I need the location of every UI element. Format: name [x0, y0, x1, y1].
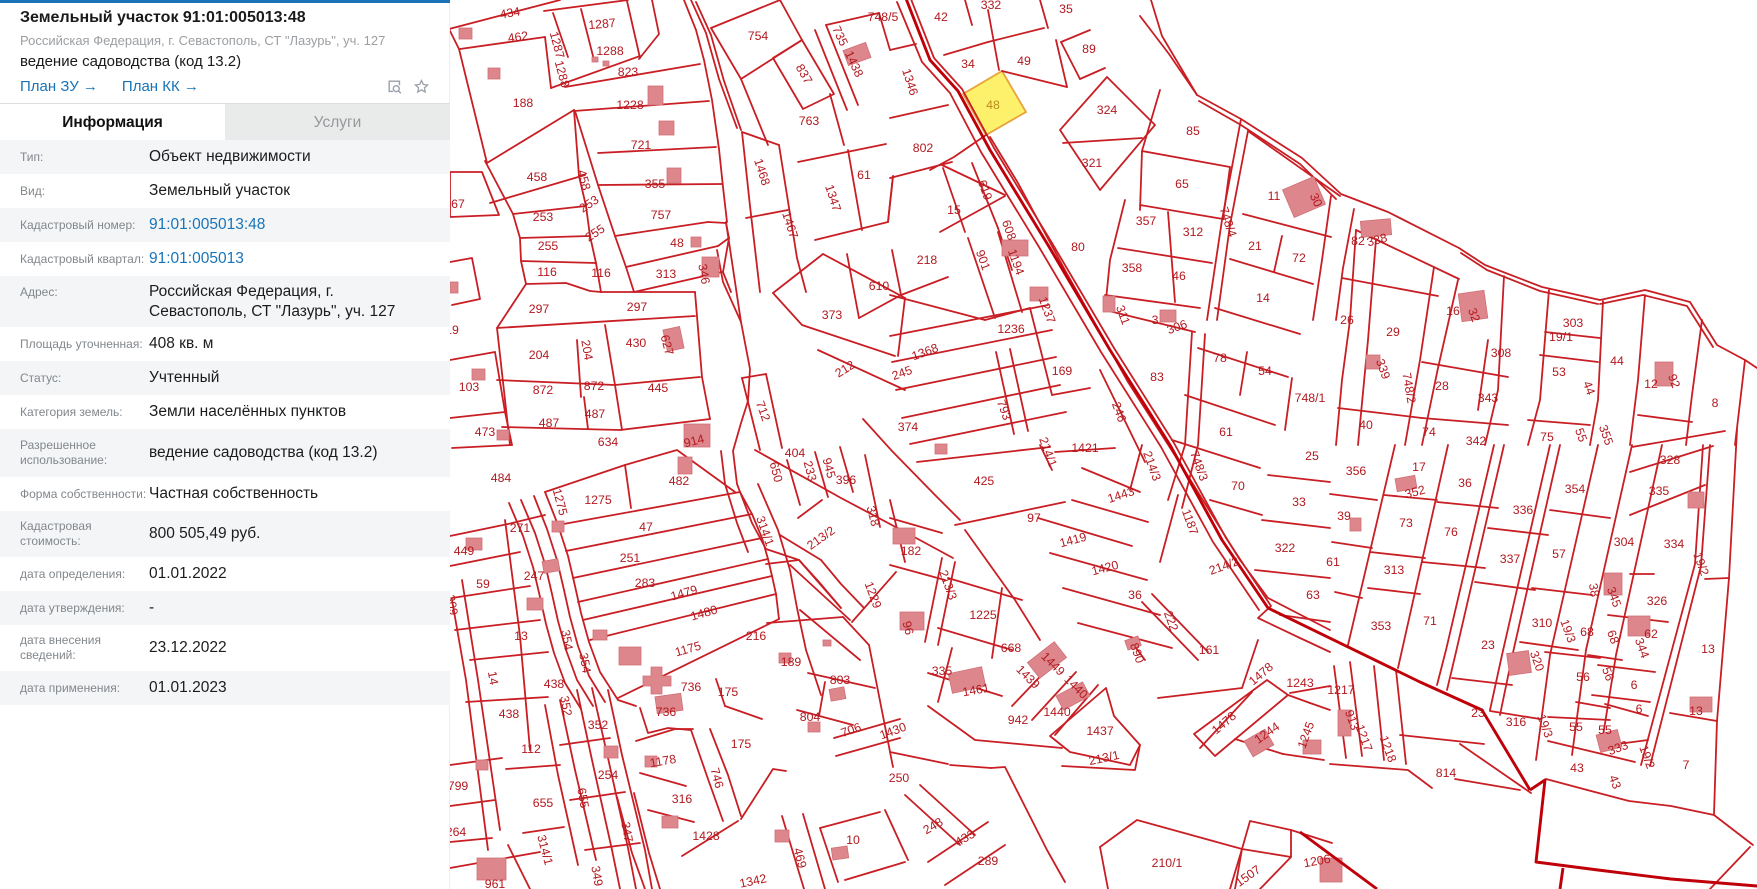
svg-text:103: 103: [459, 380, 480, 394]
svg-text:54: 54: [1258, 364, 1272, 378]
svg-text:358: 358: [1122, 261, 1143, 275]
svg-text:82: 82: [1351, 234, 1365, 248]
svg-text:61: 61: [857, 168, 871, 182]
svg-text:26: 26: [1340, 313, 1354, 327]
svg-text:343: 343: [1478, 391, 1499, 405]
svg-text:823: 823: [618, 65, 639, 79]
svg-text:57: 57: [1552, 547, 1566, 561]
svg-text:1287: 1287: [588, 16, 617, 32]
svg-text:1225: 1225: [969, 608, 997, 622]
svg-text:254: 254: [598, 768, 619, 782]
svg-text:80: 80: [1071, 240, 1085, 254]
svg-text:34: 34: [961, 57, 975, 71]
svg-text:322: 322: [1275, 541, 1296, 555]
svg-text:316: 316: [1506, 715, 1527, 729]
svg-text:218: 218: [917, 253, 938, 267]
svg-text:297: 297: [529, 302, 550, 316]
svg-text:13: 13: [514, 629, 528, 643]
svg-text:373: 373: [822, 308, 843, 322]
svg-text:7: 7: [1683, 758, 1690, 772]
svg-text:74: 74: [1422, 425, 1436, 439]
svg-text:1421: 1421: [1071, 441, 1099, 455]
svg-text:48: 48: [670, 236, 684, 250]
svg-text:116: 116: [537, 265, 557, 279]
svg-text:1228: 1228: [616, 98, 644, 112]
svg-text:754: 754: [748, 29, 769, 43]
svg-text:25: 25: [1305, 449, 1319, 463]
svg-text:335: 335: [1649, 484, 1670, 498]
svg-text:342: 342: [1466, 434, 1487, 448]
svg-text:438: 438: [499, 707, 520, 721]
svg-text:12: 12: [1644, 377, 1658, 391]
svg-text:332: 332: [981, 0, 1002, 12]
svg-text:39: 39: [1337, 509, 1351, 523]
svg-text:337: 337: [1500, 552, 1521, 566]
svg-text:1428: 1428: [692, 829, 720, 843]
svg-text:872: 872: [584, 379, 605, 393]
svg-text:47: 47: [639, 520, 653, 534]
svg-text:63: 63: [1306, 588, 1320, 602]
svg-text:216: 216: [746, 629, 767, 643]
svg-text:112: 112: [521, 742, 541, 756]
svg-text:85: 85: [1186, 124, 1200, 138]
svg-text:76: 76: [1444, 525, 1458, 539]
svg-text:204: 204: [529, 348, 550, 362]
svg-text:70: 70: [1231, 479, 1245, 493]
svg-text:942: 942: [1008, 713, 1029, 727]
svg-text:487: 487: [585, 407, 606, 421]
svg-text:251: 251: [620, 551, 641, 565]
svg-text:59: 59: [476, 577, 490, 591]
svg-text:73: 73: [1399, 516, 1413, 530]
svg-text:68: 68: [1580, 625, 1594, 639]
svg-text:253: 253: [533, 210, 554, 224]
svg-text:78: 78: [1213, 351, 1227, 365]
svg-text:44: 44: [1610, 354, 1624, 368]
svg-text:19/1: 19/1: [1549, 330, 1573, 344]
svg-text:354: 354: [1565, 482, 1586, 496]
svg-text:655: 655: [533, 796, 554, 810]
svg-text:303: 303: [1563, 316, 1584, 330]
svg-text:188: 188: [513, 96, 534, 110]
svg-text:55: 55: [1569, 720, 1583, 734]
svg-text:304: 304: [1614, 535, 1635, 549]
svg-text:36: 36: [1128, 588, 1142, 602]
svg-text:289: 289: [978, 854, 999, 868]
svg-text:161: 161: [1199, 643, 1220, 657]
svg-text:182: 182: [901, 544, 922, 558]
svg-text:55: 55: [1598, 723, 1612, 737]
svg-text:40: 40: [1359, 418, 1373, 432]
svg-text:48: 48: [986, 98, 1000, 112]
svg-text:1437: 1437: [1086, 724, 1114, 738]
svg-text:721: 721: [631, 138, 652, 152]
svg-text:23: 23: [1471, 706, 1485, 720]
svg-text:748/1: 748/1: [1295, 391, 1326, 405]
svg-text:748/5: 748/5: [868, 10, 899, 24]
svg-text:15: 15: [947, 203, 961, 217]
svg-text:445: 445: [648, 381, 669, 395]
svg-text:668: 668: [1001, 641, 1022, 655]
svg-text:757: 757: [651, 208, 672, 222]
svg-text:374: 374: [898, 420, 919, 434]
svg-text:610: 610: [869, 279, 890, 293]
svg-text:29: 29: [1386, 325, 1400, 339]
svg-text:283: 283: [635, 576, 656, 590]
svg-text:352: 352: [588, 718, 609, 732]
svg-text:353: 353: [1371, 619, 1392, 633]
svg-text:326: 326: [1647, 594, 1668, 608]
svg-text:28: 28: [1435, 379, 1449, 393]
svg-text:396: 396: [836, 473, 857, 487]
svg-text:65: 65: [1175, 177, 1189, 191]
svg-text:6: 6: [1636, 702, 1643, 716]
svg-text:43: 43: [1570, 761, 1584, 775]
svg-text:255: 255: [538, 239, 559, 253]
svg-text:324: 324: [1097, 103, 1118, 117]
svg-text:49: 49: [1017, 54, 1031, 68]
svg-text:75: 75: [1540, 430, 1554, 444]
svg-text:1440: 1440: [1043, 705, 1071, 719]
svg-text:97: 97: [1027, 511, 1041, 525]
svg-text:271: 271: [510, 521, 531, 535]
svg-text:297: 297: [627, 300, 648, 314]
svg-text:961: 961: [485, 877, 506, 889]
svg-text:36: 36: [1458, 476, 1472, 490]
svg-text:61: 61: [1326, 555, 1340, 569]
svg-text:116: 116: [591, 266, 611, 280]
svg-text:33: 33: [1292, 495, 1306, 509]
svg-text:175: 175: [718, 685, 739, 699]
svg-text:736: 736: [656, 705, 677, 719]
svg-text:42: 42: [934, 10, 948, 24]
svg-text:763: 763: [799, 114, 820, 128]
svg-text:799: 799: [448, 779, 469, 793]
svg-text:250: 250: [889, 771, 910, 785]
svg-text:804: 804: [800, 710, 821, 724]
svg-text:13: 13: [1701, 642, 1715, 656]
svg-text:1243: 1243: [1286, 676, 1314, 690]
svg-text:17: 17: [1412, 460, 1426, 474]
svg-text:335: 335: [932, 664, 953, 678]
svg-text:1236: 1236: [997, 322, 1025, 336]
svg-text:814: 814: [1436, 766, 1457, 780]
svg-text:247: 247: [524, 569, 545, 583]
svg-text:8: 8: [1712, 396, 1719, 410]
svg-text:310: 310: [1532, 616, 1553, 630]
svg-text:313: 313: [1384, 563, 1405, 577]
svg-text:3: 3: [1152, 313, 1159, 327]
svg-text:23: 23: [1481, 638, 1495, 652]
svg-text:56: 56: [1576, 670, 1590, 684]
svg-text:308: 308: [1491, 346, 1512, 360]
svg-text:357: 357: [1136, 214, 1157, 228]
svg-text:462: 462: [507, 29, 529, 46]
svg-text:312: 312: [1183, 225, 1204, 239]
svg-text:449: 449: [454, 544, 475, 558]
svg-text:14: 14: [1256, 291, 1270, 305]
svg-text:484: 484: [491, 471, 512, 485]
svg-text:736: 736: [681, 680, 702, 694]
svg-text:634: 634: [598, 435, 619, 449]
svg-text:14: 14: [485, 670, 501, 686]
svg-text:13: 13: [1689, 704, 1703, 718]
svg-text:46: 46: [1172, 269, 1186, 283]
svg-text:1275: 1275: [584, 493, 612, 507]
svg-text:6: 6: [1631, 678, 1638, 692]
svg-text:38: 38: [1586, 582, 1602, 598]
svg-text:83: 83: [1150, 370, 1164, 384]
svg-text:1217: 1217: [1327, 683, 1355, 697]
svg-text:67: 67: [451, 197, 465, 211]
svg-text:53: 53: [1552, 365, 1566, 379]
svg-text:210/1: 210/1: [1152, 856, 1183, 870]
svg-text:175: 175: [731, 737, 752, 751]
svg-text:458: 458: [527, 170, 548, 184]
svg-text:89: 89: [1082, 42, 1096, 56]
svg-text:71: 71: [1423, 614, 1437, 628]
svg-text:313: 313: [656, 267, 677, 281]
svg-text:11: 11: [1268, 189, 1281, 203]
svg-text:189: 189: [781, 655, 802, 669]
svg-text:1288: 1288: [596, 44, 624, 58]
svg-text:355: 355: [645, 177, 666, 191]
svg-text:61: 61: [1219, 425, 1233, 439]
svg-text:321: 321: [1082, 156, 1103, 170]
svg-text:35: 35: [1059, 2, 1073, 16]
svg-text:404: 404: [785, 446, 806, 460]
svg-text:334: 334: [1664, 537, 1685, 551]
svg-text:316: 316: [672, 792, 693, 806]
svg-text:430: 430: [626, 336, 647, 350]
svg-text:356: 356: [1346, 464, 1367, 478]
svg-text:802: 802: [913, 141, 934, 155]
svg-text:336: 336: [1513, 503, 1534, 517]
svg-text:803: 803: [830, 673, 851, 687]
svg-text:425: 425: [974, 474, 995, 488]
svg-text:872: 872: [533, 383, 554, 397]
svg-text:482: 482: [669, 474, 690, 488]
svg-text:72: 72: [1292, 251, 1306, 265]
svg-text:487: 487: [539, 416, 560, 430]
svg-text:438: 438: [544, 677, 565, 691]
svg-text:10: 10: [846, 833, 860, 847]
svg-text:473: 473: [475, 425, 496, 439]
svg-text:328: 328: [1660, 453, 1681, 467]
svg-text:16: 16: [1446, 304, 1460, 318]
svg-text:21: 21: [1248, 239, 1262, 253]
svg-text:169: 169: [1052, 364, 1073, 378]
